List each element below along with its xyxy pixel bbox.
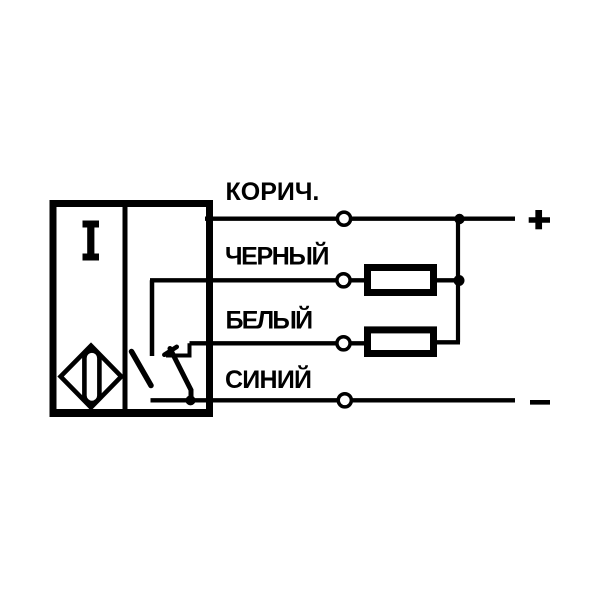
svg-text:СИНИЙ: СИНИЙ (225, 364, 311, 394)
svg-text:КОРИЧ.: КОРИЧ. (226, 178, 320, 206)
svg-text:ЧЕРНЫЙ: ЧЕРНЫЙ (225, 241, 328, 271)
svg-text:БЕЛЫЙ: БЕЛЫЙ (226, 305, 313, 335)
